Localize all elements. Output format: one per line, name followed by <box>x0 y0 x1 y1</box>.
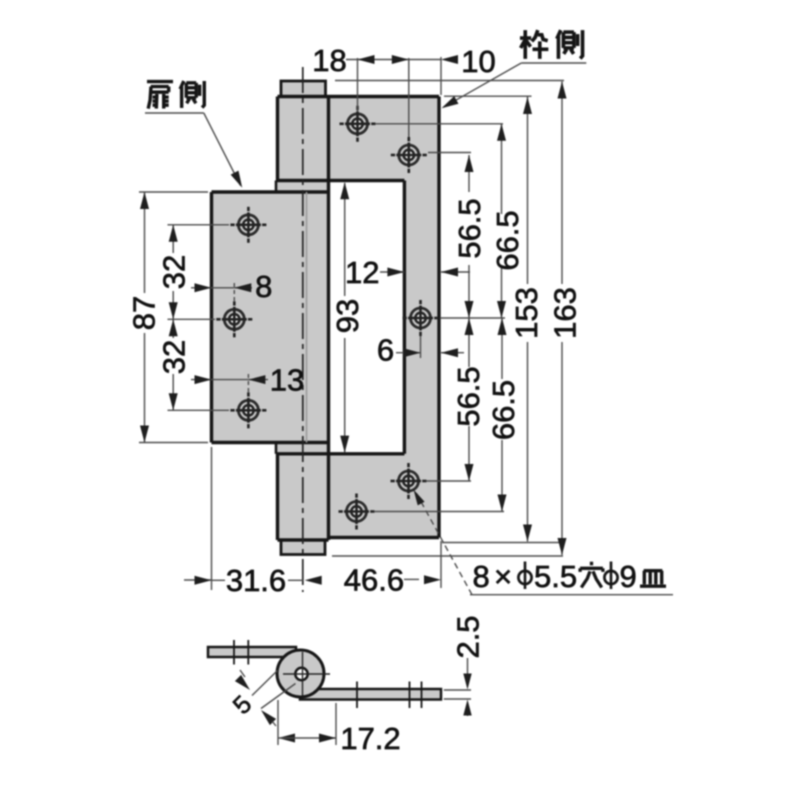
svg-text:×: × <box>494 559 512 594</box>
svg-text:66.5: 66.5 <box>486 380 521 440</box>
svg-text:9: 9 <box>620 559 637 594</box>
svg-text:17.2: 17.2 <box>340 721 400 756</box>
svg-text:12: 12 <box>345 255 379 290</box>
svg-text:6: 6 <box>377 332 394 367</box>
svg-text:32: 32 <box>156 340 191 374</box>
svg-text:153: 153 <box>509 287 544 339</box>
svg-text:8: 8 <box>255 269 272 304</box>
svg-text:66.5: 66.5 <box>490 210 525 270</box>
svg-text:10: 10 <box>461 44 495 79</box>
svg-text:87: 87 <box>126 296 161 330</box>
svg-text:13: 13 <box>270 362 304 397</box>
svg-text:56.5: 56.5 <box>451 366 486 426</box>
svg-text:93: 93 <box>330 299 365 333</box>
svg-text:163: 163 <box>547 287 582 339</box>
svg-text:2.5: 2.5 <box>450 615 485 658</box>
svg-text:18: 18 <box>312 43 346 78</box>
svg-text:31.6: 31.6 <box>226 563 286 598</box>
svg-text:5.5: 5.5 <box>534 559 577 594</box>
svg-text:56.5: 56.5 <box>452 198 487 258</box>
svg-text:8: 8 <box>473 559 490 594</box>
svg-text:32: 32 <box>156 255 191 289</box>
svg-text:46.6: 46.6 <box>344 562 404 597</box>
